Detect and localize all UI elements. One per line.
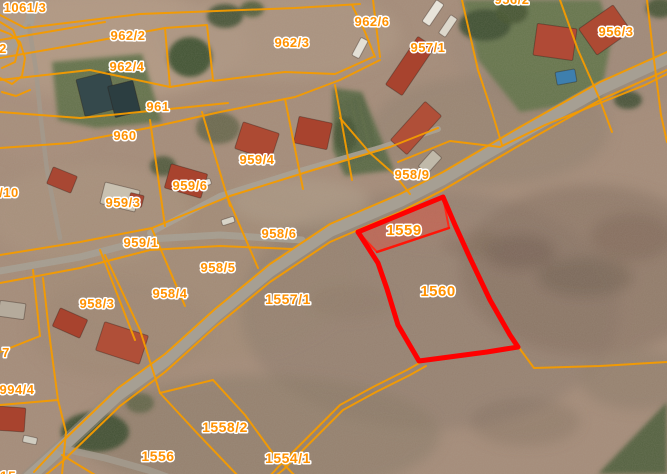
parcel-label-962-2[interactable]: 962/2	[110, 28, 145, 43]
parcel-label-956-2[interactable]: 956/2	[494, 0, 529, 7]
parcel-label-958-4[interactable]: 958/4	[152, 286, 187, 301]
parcel-label-1558-2[interactable]: 1558/2	[202, 419, 248, 435]
parcel-label-959-4[interactable]: 959/4	[239, 152, 274, 167]
cadastral-map-viewport[interactable]: 1061/32962/2962/4962/3962/6956/2957/1956…	[0, 0, 667, 474]
building-roof	[555, 69, 577, 85]
parcel-label-959-1[interactable]: 959/1	[123, 235, 158, 250]
parcel-label-959-6[interactable]: 959/6	[172, 178, 207, 193]
cadastral-map-canvas[interactable]: 1061/32962/2962/4962/3962/6956/2957/1956…	[0, 0, 667, 474]
parcel-label-960[interactable]: 960	[113, 128, 136, 143]
parcel-label-958-6[interactable]: 958/6	[261, 226, 296, 241]
parcel-label-962-4[interactable]: 962/4	[109, 59, 144, 74]
building-roof	[0, 406, 26, 432]
parcel-label-957-1[interactable]: 957/1	[410, 40, 445, 55]
parcel-label--10[interactable]: /10	[0, 185, 19, 200]
parcel-label-1554-1[interactable]: 1554/1	[265, 450, 311, 466]
parcel-label-958-5[interactable]: 958/5	[200, 260, 235, 275]
parcel-label-1061-3[interactable]: 1061/3	[4, 0, 47, 15]
parcel-label-959-3[interactable]: 959/3	[105, 195, 140, 210]
parcel-label-1560[interactable]: 1560	[420, 283, 455, 300]
parcel-label-962-3[interactable]: 962/3	[274, 35, 309, 50]
parcel-label-958-3[interactable]: 958/3	[79, 296, 114, 311]
parcel-label-1557-1[interactable]: 1557/1	[265, 291, 311, 307]
parcel-label-1556[interactable]: 1556	[141, 448, 174, 464]
parcel-label-1559[interactable]: 1559	[386, 222, 421, 239]
parcel-label-15[interactable]: 15	[0, 468, 16, 474]
parcel-label-994-4[interactable]: 994/4	[0, 382, 35, 397]
parcel-label-2[interactable]: 2	[0, 41, 7, 56]
parcel-label-958-9[interactable]: 958/9	[394, 167, 429, 182]
parcel-label-956-3[interactable]: 956/3	[598, 24, 633, 39]
parcel-label-7[interactable]: 7	[2, 345, 10, 360]
building-roof	[0, 300, 26, 319]
parcel-label-962-6[interactable]: 962/6	[354, 14, 389, 29]
parcel-label-961[interactable]: 961	[146, 99, 169, 114]
